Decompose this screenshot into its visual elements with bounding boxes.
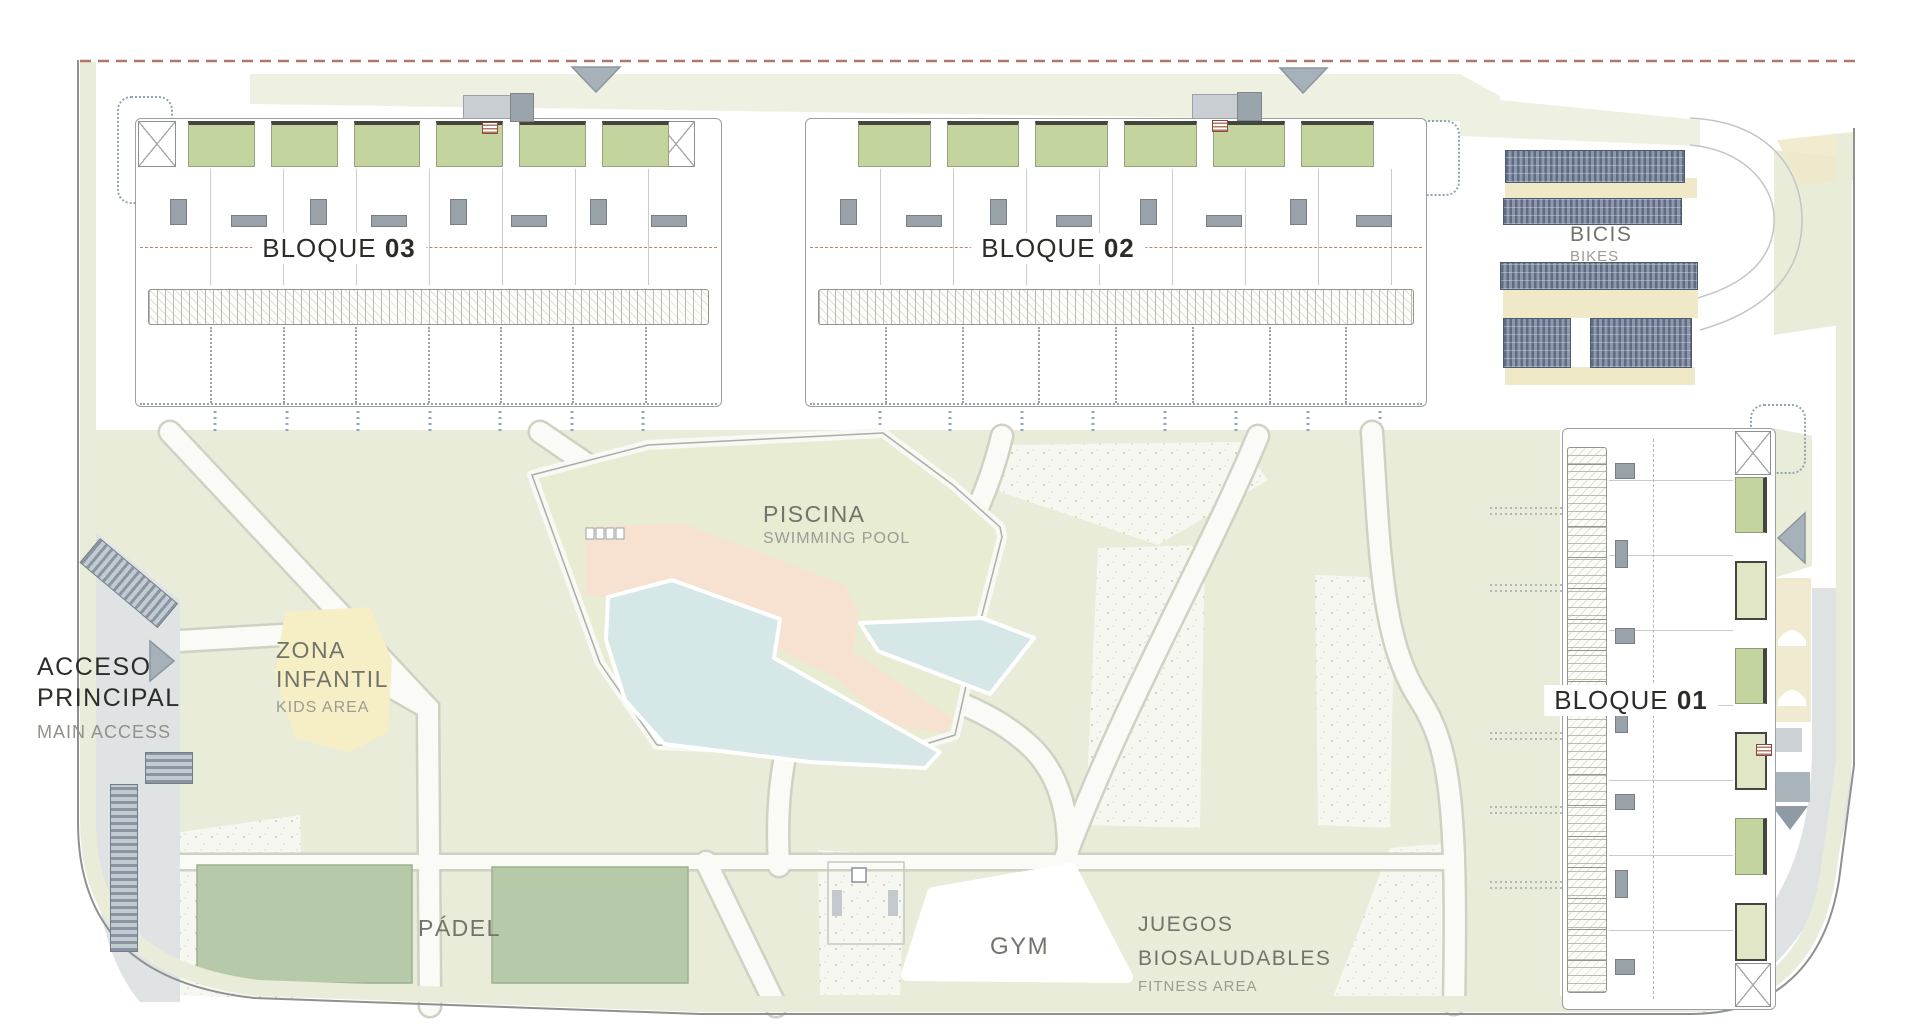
furniture-block <box>1615 959 1635 975</box>
terrace-furniture <box>840 199 1392 227</box>
furniture-block <box>1206 215 1242 227</box>
garden-plot <box>1117 327 1194 403</box>
garden-plot <box>357 327 429 403</box>
garden-plot <box>285 327 357 403</box>
bikes-label: BICIS BIKES <box>1570 222 1632 267</box>
garden-plot <box>964 327 1041 403</box>
garden-plot <box>574 327 646 403</box>
bike-rack <box>1505 150 1685 183</box>
furniture-block <box>1615 870 1628 898</box>
bike-rack <box>1503 198 1682 225</box>
stair-core-icon <box>138 121 176 167</box>
building-bloque-03: BLOQUE 03 <box>135 118 722 407</box>
gym-label: GYM <box>990 932 1049 962</box>
patio <box>947 121 1020 167</box>
bike-rack <box>1590 318 1692 368</box>
patio <box>271 121 338 167</box>
site-plan: BLOQUE 03 BLOQUE 02 BLOQUE 01 <box>0 0 1920 1024</box>
patio <box>1735 648 1767 704</box>
furniture-block <box>1056 215 1092 227</box>
furniture-block <box>651 215 687 227</box>
garden-plot <box>1040 327 1117 403</box>
beige-band <box>1503 288 1698 318</box>
building-label-bloque-03: BLOQUE 03 <box>252 233 426 264</box>
furniture-block <box>990 199 1007 225</box>
zona-infantil-label: ZONA INFANTIL KIDS AREA <box>276 636 389 718</box>
patio <box>1735 561 1767 619</box>
patio <box>1035 121 1108 167</box>
garden-plot <box>502 327 574 403</box>
garden-plot <box>887 327 964 403</box>
padel-court <box>197 865 412 983</box>
patio <box>858 121 931 167</box>
juegos-label: JUEGOS BIOSALUDABLES FITNESS AREA <box>1138 908 1331 999</box>
building-bloque-02: BLOQUE 02 <box>805 118 1427 407</box>
utility-block <box>510 93 534 122</box>
patio <box>1735 818 1767 874</box>
garden-plot <box>212 327 284 403</box>
furniture-block <box>511 215 547 227</box>
furniture-block <box>906 215 942 227</box>
building-label-bloque-01: BLOQUE 01 <box>1544 685 1718 716</box>
lawn-top-right <box>1460 96 1700 146</box>
utility-block <box>1192 94 1239 119</box>
patio-row <box>188 121 669 167</box>
furniture-block <box>1615 540 1628 568</box>
furniture-block <box>371 215 407 227</box>
patio-column <box>1735 477 1767 961</box>
patio <box>1735 477 1767 533</box>
acceso-principal-label: ACCESO PRINCIPAL MAIN ACCESS <box>37 652 181 743</box>
bike-parking-zone: BICIS BIKES <box>1496 146 1700 390</box>
utility-block <box>1772 728 1802 752</box>
patio <box>1735 732 1767 790</box>
patio <box>188 121 255 167</box>
padel-court <box>492 867 688 983</box>
patio <box>519 121 586 167</box>
vent-grille-icon <box>1212 120 1228 132</box>
furniture-block <box>840 199 857 225</box>
patio <box>1124 121 1197 167</box>
terrace-hatch-band <box>818 289 1414 325</box>
furniture-block <box>310 199 327 225</box>
utility-block <box>463 95 512 119</box>
parking-strip <box>110 784 138 952</box>
unit-divisions <box>138 169 719 285</box>
furniture-block <box>1615 794 1635 810</box>
furniture-block <box>1290 199 1307 225</box>
terrace-hatch-strip <box>1567 447 1607 993</box>
furniture-block <box>590 199 607 225</box>
section-dashed-line <box>140 247 717 248</box>
padel-label: PÁDEL <box>418 914 501 943</box>
furniture-block <box>1140 199 1157 225</box>
vent-grille-icon <box>1756 744 1772 756</box>
bike-rack <box>1503 318 1571 368</box>
patio <box>1301 121 1374 167</box>
garden-plot <box>1194 327 1271 403</box>
patio <box>602 121 669 167</box>
section-dashed-line <box>1653 439 1654 999</box>
garden-plot <box>647 327 717 403</box>
garden-plot <box>1271 327 1348 403</box>
building-bloque-01: BLOQUE 01 <box>1562 428 1776 1010</box>
garden-plots <box>140 327 717 405</box>
utility-block <box>1772 772 1810 802</box>
hedge-dotted-lines <box>215 405 1380 431</box>
furniture-block <box>170 199 187 225</box>
garden-plot <box>810 327 887 403</box>
patio-row <box>858 121 1374 167</box>
garden-plot <box>430 327 502 403</box>
stair-core-icon <box>1735 431 1771 475</box>
stair-core-icon <box>1735 963 1771 1007</box>
furniture-block <box>231 215 267 227</box>
garden-plot <box>140 327 212 403</box>
terrace-furniture <box>1615 463 1635 975</box>
furniture-block <box>1356 215 1392 227</box>
beige-band <box>1505 367 1695 385</box>
piscina-label: PISCINA SWIMMING POOL <box>763 500 910 549</box>
parking-strip <box>145 752 193 784</box>
vent-grille-icon <box>482 122 498 134</box>
terrace-hatch-band <box>148 289 709 325</box>
building-label-bloque-02: BLOQUE 02 <box>971 233 1145 264</box>
furniture-block <box>450 199 467 225</box>
corner-triangle <box>1772 806 1808 830</box>
garden-plot <box>1347 327 1422 403</box>
unit-divisions <box>808 169 1424 285</box>
furniture-block <box>1615 463 1635 479</box>
patio <box>1735 903 1767 961</box>
patio <box>354 121 421 167</box>
garden-plots <box>810 327 1422 405</box>
terrace-furniture <box>170 199 687 227</box>
utility-block <box>1237 92 1262 121</box>
furniture-block <box>1615 628 1635 644</box>
